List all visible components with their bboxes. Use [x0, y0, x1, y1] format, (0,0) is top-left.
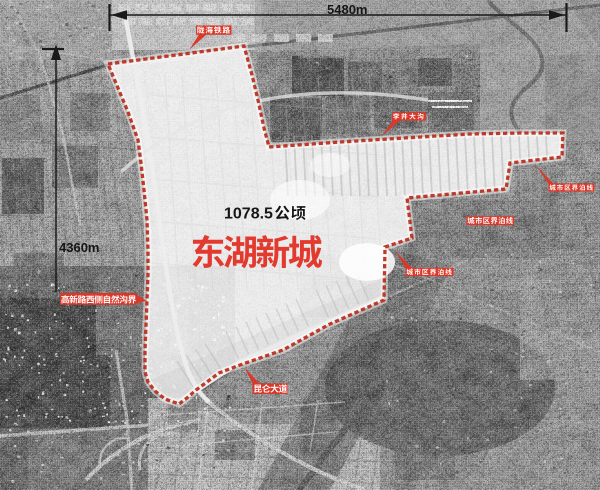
- svg-text:1078.5: 1078.5: [224, 206, 273, 223]
- svg-text:4360m: 4360m: [59, 240, 99, 255]
- svg-text:5480m: 5480m: [327, 2, 367, 17]
